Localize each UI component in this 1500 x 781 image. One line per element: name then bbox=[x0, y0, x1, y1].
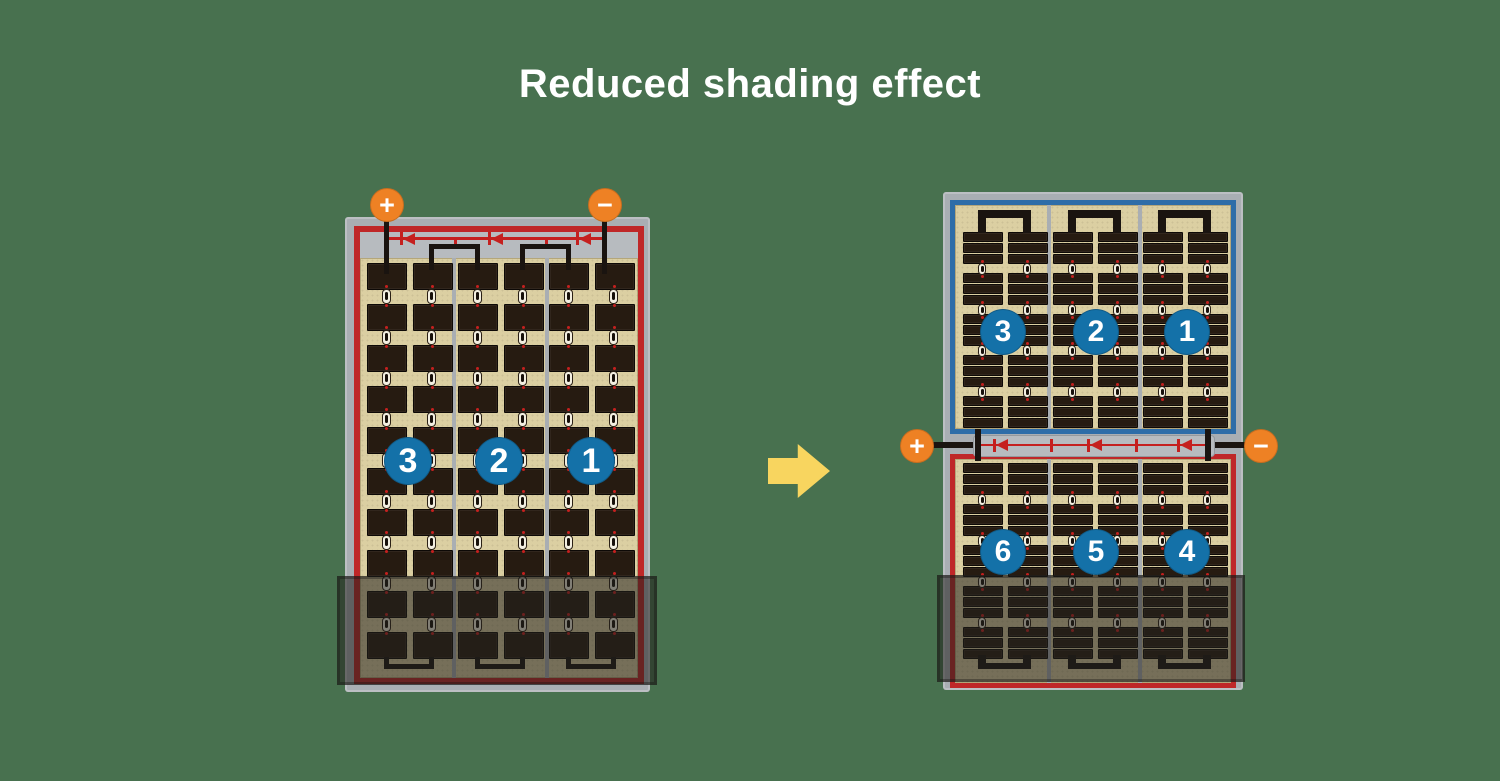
half-cut-cell bbox=[1008, 407, 1048, 417]
string-number: 1 bbox=[1179, 315, 1196, 349]
left-positive-terminal: + bbox=[370, 188, 404, 222]
half-cut-cell bbox=[1008, 515, 1048, 525]
right-top-string-badge-1: 1 bbox=[1164, 309, 1210, 355]
half-cut-cell bbox=[1053, 366, 1093, 376]
cell-connector bbox=[427, 289, 436, 304]
cell-connector bbox=[427, 330, 436, 345]
top-busbar bbox=[475, 244, 480, 270]
cell-connector bbox=[1158, 345, 1166, 357]
half-cut-cell bbox=[963, 418, 1003, 428]
cell-connector bbox=[518, 412, 527, 427]
half-cut-cell bbox=[1188, 355, 1228, 365]
half-cut-cell bbox=[1143, 418, 1183, 428]
cell-connector bbox=[518, 289, 527, 304]
left-busbar-diode-strip bbox=[360, 232, 638, 258]
half-cut-cell bbox=[1008, 232, 1048, 242]
half-cut-cell bbox=[1143, 407, 1183, 417]
half-cut-cell bbox=[1098, 355, 1138, 365]
bypass-diode-icon bbox=[579, 233, 591, 245]
half-cut-cell bbox=[1143, 474, 1183, 484]
half-cut-cell bbox=[1188, 366, 1228, 376]
cell-connector bbox=[1203, 494, 1211, 506]
top-busbar bbox=[1158, 210, 1166, 233]
half-cut-cell bbox=[1143, 515, 1183, 525]
half-cut-cell bbox=[963, 515, 1003, 525]
cell-connector bbox=[473, 289, 482, 304]
half-cut-cell bbox=[1098, 366, 1138, 376]
bypass-diode-icon bbox=[996, 439, 1008, 451]
cell-connector bbox=[518, 535, 527, 550]
cell-connector bbox=[382, 535, 391, 550]
cell-connector bbox=[382, 412, 391, 427]
half-cut-cell bbox=[1008, 273, 1048, 283]
half-cut-cell bbox=[1143, 504, 1183, 514]
diagram-title: Reduced shading effect bbox=[0, 62, 1500, 107]
half-cut-cell bbox=[1098, 474, 1138, 484]
half-cut-cell bbox=[1143, 243, 1183, 253]
string-number: 4 bbox=[1179, 535, 1196, 569]
half-cut-cell bbox=[1053, 515, 1093, 525]
cell-connector bbox=[1158, 263, 1166, 275]
cell-connector bbox=[1158, 386, 1166, 398]
half-cut-cell bbox=[1143, 284, 1183, 294]
cell-connector bbox=[1068, 263, 1076, 275]
half-cut-cell bbox=[1143, 366, 1183, 376]
half-cut-cell bbox=[1143, 355, 1183, 365]
half-cut-cell bbox=[1188, 243, 1228, 253]
cell-connector bbox=[978, 494, 986, 506]
half-cut-cell bbox=[1053, 355, 1093, 365]
cell-connector bbox=[1023, 304, 1031, 316]
cell-connector bbox=[564, 494, 573, 509]
cell-connector bbox=[1203, 263, 1211, 275]
half-cut-cell bbox=[1098, 418, 1138, 428]
half-cut-cell bbox=[1188, 273, 1228, 283]
half-cut-cell bbox=[1053, 418, 1093, 428]
diode-circuit-tap bbox=[1135, 439, 1138, 452]
top-busbar bbox=[566, 244, 571, 270]
cell-connector bbox=[1113, 304, 1121, 316]
top-busbar bbox=[520, 244, 571, 249]
cell-connector bbox=[609, 371, 618, 386]
top-busbar bbox=[1068, 210, 1076, 233]
half-cut-cell bbox=[1098, 515, 1138, 525]
minus-icon: − bbox=[597, 192, 613, 219]
string-number: 3 bbox=[399, 442, 418, 481]
cell-connector bbox=[1113, 386, 1121, 398]
cell-connector bbox=[1113, 345, 1121, 357]
cell-connector bbox=[382, 371, 391, 386]
half-cut-cell bbox=[1143, 396, 1183, 406]
half-cut-cell bbox=[1188, 284, 1228, 294]
half-cut-cell bbox=[1098, 407, 1138, 417]
half-cut-cell bbox=[1053, 463, 1093, 473]
cell-connector bbox=[427, 535, 436, 550]
cell-connector bbox=[978, 263, 986, 275]
right-shading-overlay bbox=[937, 575, 1245, 682]
cell-connector bbox=[978, 386, 986, 398]
cell-connector bbox=[1068, 304, 1076, 316]
top-busbar bbox=[1023, 210, 1031, 233]
half-cut-cell bbox=[1143, 232, 1183, 242]
string-number: 3 bbox=[995, 315, 1012, 349]
half-cut-cell bbox=[963, 396, 1003, 406]
half-cut-cell bbox=[1098, 273, 1138, 283]
section-divider bbox=[1138, 205, 1142, 429]
cell-connector bbox=[518, 371, 527, 386]
half-cut-cell bbox=[1188, 504, 1228, 514]
half-cut-cell bbox=[1008, 474, 1048, 484]
cell-connector bbox=[564, 371, 573, 386]
right-top-string-badge-3: 3 bbox=[980, 309, 1026, 355]
half-cut-cell bbox=[1143, 463, 1183, 473]
bypass-diode-icon bbox=[1090, 439, 1102, 451]
half-cut-cell bbox=[1053, 232, 1093, 242]
top-busbar bbox=[520, 244, 525, 270]
half-cut-cell bbox=[1008, 418, 1048, 428]
string-number: 6 bbox=[995, 535, 1012, 569]
half-cut-cell bbox=[1053, 243, 1093, 253]
half-cut-cell bbox=[963, 407, 1003, 417]
top-busbar bbox=[429, 244, 434, 270]
bypass-diode-icon bbox=[1180, 439, 1192, 451]
left-shading-overlay bbox=[337, 576, 657, 685]
string-number: 2 bbox=[490, 442, 509, 481]
half-cut-cell bbox=[1098, 504, 1138, 514]
cell-connector bbox=[473, 330, 482, 345]
junction-connector-bar-left bbox=[975, 429, 981, 461]
string-number: 2 bbox=[1088, 315, 1105, 349]
half-cut-cell bbox=[1008, 396, 1048, 406]
cell-connector bbox=[1023, 494, 1031, 506]
right-bottom-string-badge-5: 5 bbox=[1073, 529, 1119, 575]
half-cut-cell bbox=[1188, 407, 1228, 417]
half-cut-cell bbox=[1188, 463, 1228, 473]
cell-connector bbox=[1068, 494, 1076, 506]
left-string-badge-3: 3 bbox=[384, 437, 432, 485]
right-bottom-string-badge-4: 4 bbox=[1164, 529, 1210, 575]
cell-connector bbox=[564, 412, 573, 427]
half-cut-cell bbox=[1098, 232, 1138, 242]
half-cut-cell bbox=[963, 474, 1003, 484]
cell-connector bbox=[564, 289, 573, 304]
half-cut-cell bbox=[1098, 284, 1138, 294]
cell-connector bbox=[1113, 494, 1121, 506]
transition-arrow-icon bbox=[768, 444, 830, 498]
left-string-badge-2: 2 bbox=[475, 437, 523, 485]
top-busbar bbox=[978, 210, 986, 233]
cell-connector bbox=[382, 289, 391, 304]
cell-connector bbox=[564, 330, 573, 345]
half-cut-cell bbox=[963, 284, 1003, 294]
cell-connector bbox=[978, 304, 986, 316]
half-cut-cell bbox=[1008, 463, 1048, 473]
cell-connector bbox=[1203, 386, 1211, 398]
cell-connector bbox=[518, 330, 527, 345]
left-negative-terminal: − bbox=[588, 188, 622, 222]
cell-connector bbox=[1068, 386, 1076, 398]
cell-connector bbox=[473, 535, 482, 550]
half-cut-cell bbox=[1188, 474, 1228, 484]
cell-connector bbox=[473, 494, 482, 509]
plus-icon: + bbox=[909, 433, 925, 460]
bypass-diode-icon bbox=[491, 233, 503, 245]
cell-connector bbox=[1113, 263, 1121, 275]
half-cut-cell bbox=[963, 355, 1003, 365]
half-cut-cell bbox=[963, 504, 1003, 514]
cell-connector bbox=[1023, 345, 1031, 357]
half-cut-cell bbox=[1188, 396, 1228, 406]
cell-connector bbox=[473, 412, 482, 427]
right-top-string-badge-2: 2 bbox=[1073, 309, 1119, 355]
half-cut-cell bbox=[1008, 355, 1048, 365]
cell-connector bbox=[609, 412, 618, 427]
cell-connector bbox=[427, 412, 436, 427]
diode-circuit-tap bbox=[1050, 439, 1053, 452]
cell-connector bbox=[1023, 263, 1031, 275]
half-cut-cell bbox=[963, 273, 1003, 283]
cell-connector bbox=[1158, 494, 1166, 506]
half-cut-cell bbox=[1188, 515, 1228, 525]
plus-icon: + bbox=[379, 192, 395, 219]
top-busbar bbox=[429, 244, 480, 249]
cell-connector bbox=[1023, 386, 1031, 398]
half-cut-cell bbox=[1053, 407, 1093, 417]
half-cut-cell bbox=[963, 243, 1003, 253]
cell-connector bbox=[1068, 345, 1076, 357]
cell-connector bbox=[382, 494, 391, 509]
half-cut-cell bbox=[963, 232, 1003, 242]
bypass-diode-strip bbox=[973, 435, 1215, 457]
half-cut-cell bbox=[1188, 418, 1228, 428]
cell-connector bbox=[609, 535, 618, 550]
left-string-badge-1: 1 bbox=[567, 437, 615, 485]
half-cut-cell bbox=[1008, 504, 1048, 514]
half-cut-cell bbox=[1053, 273, 1093, 283]
half-cut-cell bbox=[1053, 474, 1093, 484]
half-cut-cell bbox=[1053, 396, 1093, 406]
diagram-canvas: Reduced shading effect + − 3 2 1 + − 3 2 bbox=[0, 0, 1500, 781]
cell-connector bbox=[609, 494, 618, 509]
junction-connector-bar-right bbox=[1205, 429, 1211, 461]
top-busbar bbox=[1203, 210, 1211, 233]
half-cut-cell bbox=[1008, 366, 1048, 376]
cell-connector bbox=[427, 494, 436, 509]
string-number: 1 bbox=[582, 442, 601, 481]
half-cut-cell bbox=[1098, 463, 1138, 473]
positive-lead-wire bbox=[928, 442, 978, 448]
bypass-diode-icon bbox=[403, 233, 415, 245]
cell-connector bbox=[1158, 304, 1166, 316]
cell-connector bbox=[382, 330, 391, 345]
cell-connector bbox=[518, 494, 527, 509]
half-cut-cell bbox=[963, 463, 1003, 473]
cell-connector bbox=[473, 371, 482, 386]
cell-connector bbox=[564, 535, 573, 550]
right-bottom-string-badge-6: 6 bbox=[980, 529, 1026, 575]
cell-connector bbox=[1203, 304, 1211, 316]
half-cut-cell bbox=[1098, 396, 1138, 406]
right-negative-terminal: − bbox=[1244, 429, 1278, 463]
half-cut-cell bbox=[963, 366, 1003, 376]
minus-icon: − bbox=[1253, 433, 1269, 460]
half-cut-cell bbox=[1143, 273, 1183, 283]
half-cut-cell bbox=[1053, 504, 1093, 514]
half-cut-cell bbox=[1008, 284, 1048, 294]
right-positive-terminal: + bbox=[900, 429, 934, 463]
half-cut-cell bbox=[1098, 243, 1138, 253]
cell-connector bbox=[609, 289, 618, 304]
half-cut-cell bbox=[1188, 232, 1228, 242]
cell-connector bbox=[427, 371, 436, 386]
cell-connector bbox=[609, 330, 618, 345]
top-busbar bbox=[1113, 210, 1121, 233]
string-number: 5 bbox=[1088, 535, 1105, 569]
half-cut-cell bbox=[1053, 284, 1093, 294]
half-cut-cell bbox=[1008, 243, 1048, 253]
